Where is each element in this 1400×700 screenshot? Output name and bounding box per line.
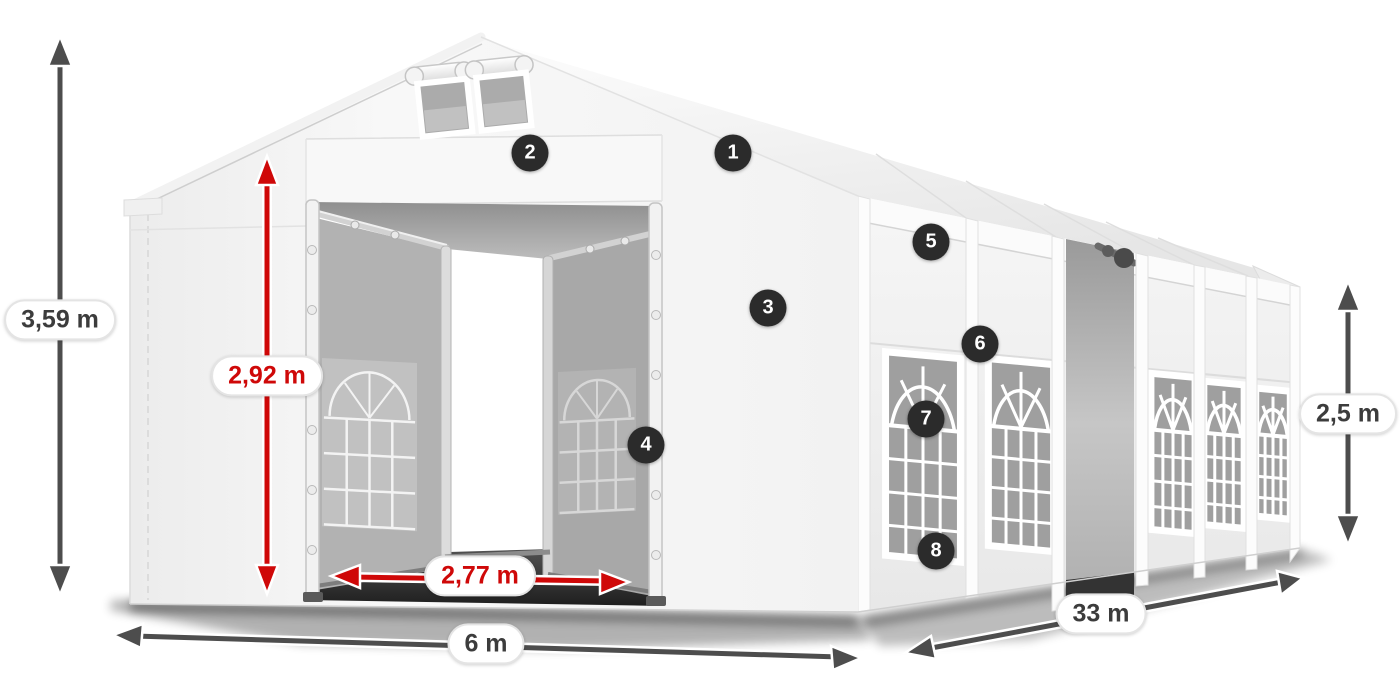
dimension-label-entrance-height: 2,92 m [211,355,323,396]
feature-marker-8: 8 [918,533,955,570]
entrance-door-panel-left [316,211,451,590]
feature-marker-3: 3 [750,290,787,327]
feature-marker-2: 2 [512,135,549,172]
dimension-label-front-width: 6 m [447,623,524,664]
feature-marker-4: 4 [628,427,665,464]
feature-marker-7: 7 [908,401,945,438]
entrance-opening [303,200,666,606]
tent-product-diagram: 3,59 m 2,92 m 2,77 m 6 m 33 m 2,5 m 1 2 … [0,0,1400,700]
eave-corner-cap [124,198,162,216]
door-roller [1114,248,1134,268]
entrance-lintel-band [306,135,662,205]
dimension-label-total-height: 3,59 m [4,299,116,340]
dimension-label-side-length: 33 m [1056,593,1147,634]
dimension-label-side-height: 2,5 m [1299,393,1397,434]
feature-marker-5: 5 [913,224,950,261]
feature-marker-6: 6 [962,326,999,363]
feature-marker-1: 1 [715,135,752,172]
side-sliding-door-opening [1066,239,1134,608]
entrance-door-panel-right [543,233,654,596]
dimension-label-entrance-width: 2,77 m [424,555,536,596]
tent-illustration [0,0,1400,700]
